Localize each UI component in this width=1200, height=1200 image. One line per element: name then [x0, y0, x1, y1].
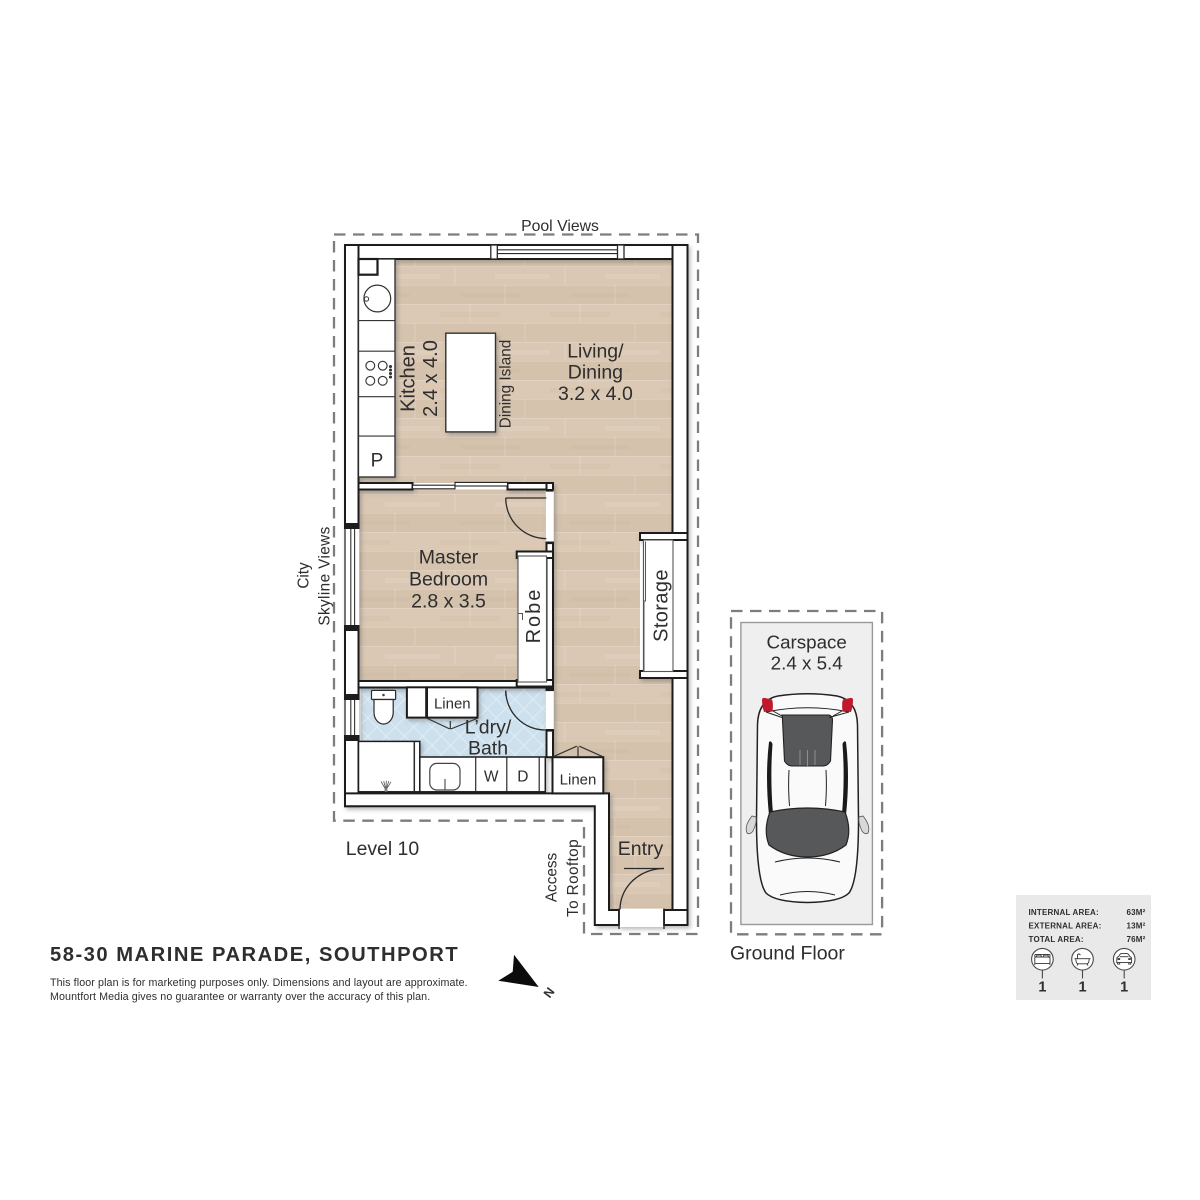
- svg-text:Bedroom: Bedroom: [409, 569, 488, 591]
- svg-text:City: City: [296, 562, 313, 589]
- svg-text:3.2 x 4.0: 3.2 x 4.0: [558, 383, 633, 405]
- svg-text:Skyline Views: Skyline Views: [317, 526, 334, 625]
- svg-text:Level 10: Level 10: [346, 838, 420, 860]
- svg-text:Carspace: Carspace: [767, 632, 847, 653]
- svg-text:Kitchen: Kitchen: [398, 345, 420, 412]
- svg-text:Mountfort Media gives no guara: Mountfort Media gives no guarantee or wa…: [50, 991, 430, 1003]
- svg-text:Living/: Living/: [567, 341, 624, 363]
- svg-text:Linen: Linen: [560, 772, 597, 789]
- svg-text:Bath: Bath: [468, 738, 508, 760]
- svg-text:1: 1: [1120, 980, 1128, 996]
- svg-text:2.4 x 5.4: 2.4 x 5.4: [771, 653, 843, 674]
- svg-text:Ground Floor: Ground Floor: [730, 943, 845, 965]
- svg-text:58-30 MARINE PARADE, SOUTHPORT: 58-30 MARINE PARADE, SOUTHPORT: [50, 944, 459, 966]
- svg-text:Pool Views: Pool Views: [521, 218, 599, 235]
- svg-text:To Rooftop: To Rooftop: [565, 839, 582, 917]
- svg-text:2.4 x 4.0: 2.4 x 4.0: [420, 340, 442, 417]
- svg-text:Access: Access: [544, 853, 561, 903]
- svg-text:63M²: 63M²: [1126, 908, 1145, 917]
- svg-text:Master: Master: [419, 547, 479, 569]
- svg-text:EXTERNAL AREA:: EXTERNAL AREA:: [1029, 922, 1102, 931]
- svg-text:Dining Island: Dining Island: [498, 340, 515, 428]
- svg-text:Linen: Linen: [434, 696, 471, 713]
- svg-text:TOTAL AREA:: TOTAL AREA:: [1029, 935, 1084, 944]
- svg-text:1: 1: [1038, 980, 1046, 996]
- svg-text:Entry: Entry: [618, 838, 664, 860]
- svg-text:2.8 x 3.5: 2.8 x 3.5: [411, 591, 486, 613]
- svg-text:Storage: Storage: [651, 569, 673, 642]
- svg-text:Robe: Robe: [523, 588, 545, 644]
- svg-text:Dining: Dining: [568, 362, 623, 384]
- svg-text:13M²: 13M²: [1126, 922, 1145, 931]
- svg-text:1: 1: [1078, 980, 1086, 996]
- svg-text:P: P: [371, 451, 384, 472]
- svg-text:76M²: 76M²: [1126, 935, 1145, 944]
- svg-text:INTERNAL AREA:: INTERNAL AREA:: [1029, 908, 1099, 917]
- svg-text:This floor plan is for marketi: This floor plan is for marketing purpose…: [50, 977, 468, 989]
- svg-text:L’dry/: L’dry/: [465, 717, 512, 739]
- svg-text:D: D: [517, 769, 528, 786]
- svg-text:W: W: [484, 769, 499, 786]
